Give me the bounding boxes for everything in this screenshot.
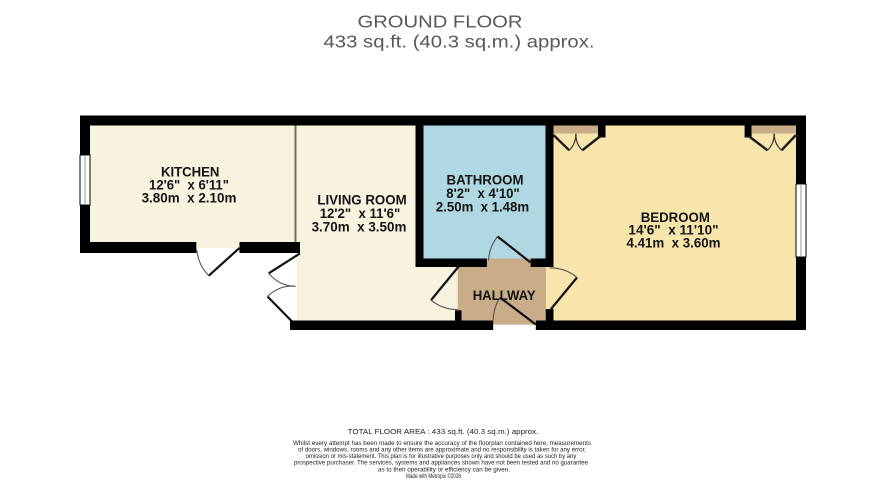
svg-text:omission or mis-statement. Thi: omission or mis-statement. This plan is …	[306, 454, 577, 460]
svg-text:4.41m x 3.60m: 4.41m x 3.60m	[627, 236, 721, 251]
svg-text:2.50m x 1.48m: 2.50m x 1.48m	[436, 200, 529, 215]
svg-text:433 sq.ft. (40.3 sq.m.) approx: 433 sq.ft. (40.3 sq.m.) approx.	[324, 32, 595, 52]
svg-text:as to their operability or eff: as to their operability or efficiency ca…	[378, 467, 510, 473]
svg-text:HALLWAY: HALLWAY	[473, 288, 536, 303]
svg-text:Made with Metropix ©2026: Made with Metropix ©2026	[406, 473, 461, 480]
svg-text:Whilst every attempt has been: Whilst every attempt has been made to en…	[293, 441, 591, 447]
svg-text:TOTAL FLOOR AREA : 433 sq.ft.: TOTAL FLOOR AREA : 433 sq.ft. (40.3 sq.m…	[348, 427, 539, 436]
svg-text:of doors, windows, rooms and a: of doors, windows, rooms and any other i…	[298, 447, 586, 453]
svg-text:prospective purchaser. The ser: prospective purchaser. The services, sys…	[294, 461, 589, 467]
svg-text:3.70m x 3.50m: 3.70m x 3.50m	[312, 219, 407, 234]
svg-text:3.80m x 2.10m: 3.80m x 2.10m	[142, 191, 237, 206]
svg-text:GROUND FLOOR: GROUND FLOOR	[358, 11, 523, 31]
